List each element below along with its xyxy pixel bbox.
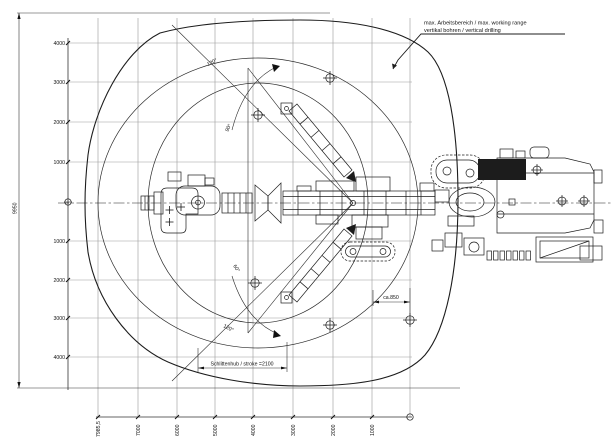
undercarriage-details (432, 233, 602, 262)
power-pack (435, 187, 495, 226)
bottom-axis-label: 3000 (291, 424, 297, 436)
angle-label-bottom: 120° (222, 323, 234, 333)
engine-block (478, 159, 526, 180)
bottom-axis-labels: 7985,5 7000 6000 5000 4000 3000 2000 100… (96, 421, 376, 437)
upper-swing-cylinder (281, 103, 356, 182)
overall-height-dimension (17, 13, 460, 388)
center-crawler-track (341, 242, 395, 261)
left-axis-label: 2000 (53, 120, 65, 126)
bottom-axis-label: 7985,5 (96, 421, 102, 437)
bottom-axis-label: 7000 (136, 424, 142, 436)
left-axis (64, 38, 72, 390)
drill-position-markers (248, 71, 417, 332)
annotation-line2: vertikal bohren / vertical drilling (424, 28, 501, 34)
bottom-axis-label: 4000 (251, 424, 257, 436)
bottom-axis (96, 414, 413, 420)
bottom-axis-label: 5000 (213, 424, 219, 436)
offset-dimension (373, 288, 410, 314)
bottom-axis-label: 2000 (331, 424, 337, 436)
angle-label-upper: 90° (224, 123, 233, 133)
left-axis-label: 1000 (53, 160, 65, 166)
annotation-line1: max. Arbeitsbereich / max. working range (424, 21, 527, 27)
left-axis-label: 4000 (53, 355, 65, 361)
overall-height-label: 9950 (13, 202, 19, 214)
clamp-plate (161, 188, 198, 233)
feed-rail (283, 177, 435, 239)
position-marker (248, 276, 262, 290)
lifting-point-markers (531, 164, 590, 207)
cad-drawing-sheet: 4000 3000 2000 1000 1000 2000 3000 4000 … (0, 0, 614, 438)
grid (68, 18, 412, 417)
bottom-axis-label: 1000 (370, 424, 376, 436)
lower-swing-cylinder (281, 224, 356, 303)
angle-label-top: 120° (206, 58, 218, 68)
offset-dimension-label: ca.850 (383, 295, 399, 301)
working-range-plan-view: 4000 3000 2000 1000 1000 2000 3000 4000 … (0, 0, 614, 438)
machine-plan-view (58, 103, 612, 303)
annotation-leader-line (392, 34, 565, 69)
left-axis-label: 3000 (53, 80, 65, 86)
left-axis-label: 2000 (53, 278, 65, 284)
drill-head-assembly (141, 172, 220, 233)
left-axis-labels: 4000 3000 2000 1000 1000 2000 3000 4000 (53, 41, 65, 361)
left-axis-label: 3000 (53, 316, 65, 322)
angle-label-lower: 60° (231, 264, 240, 274)
left-axis-label: 1000 (53, 239, 65, 245)
stroke-dimension-label: Schlittenhub / stroke =2100 (210, 362, 273, 368)
position-marker (403, 313, 417, 327)
position-marker (323, 71, 337, 85)
left-axis-label: 4000 (53, 41, 65, 47)
bottom-axis-label: 6000 (175, 424, 181, 436)
